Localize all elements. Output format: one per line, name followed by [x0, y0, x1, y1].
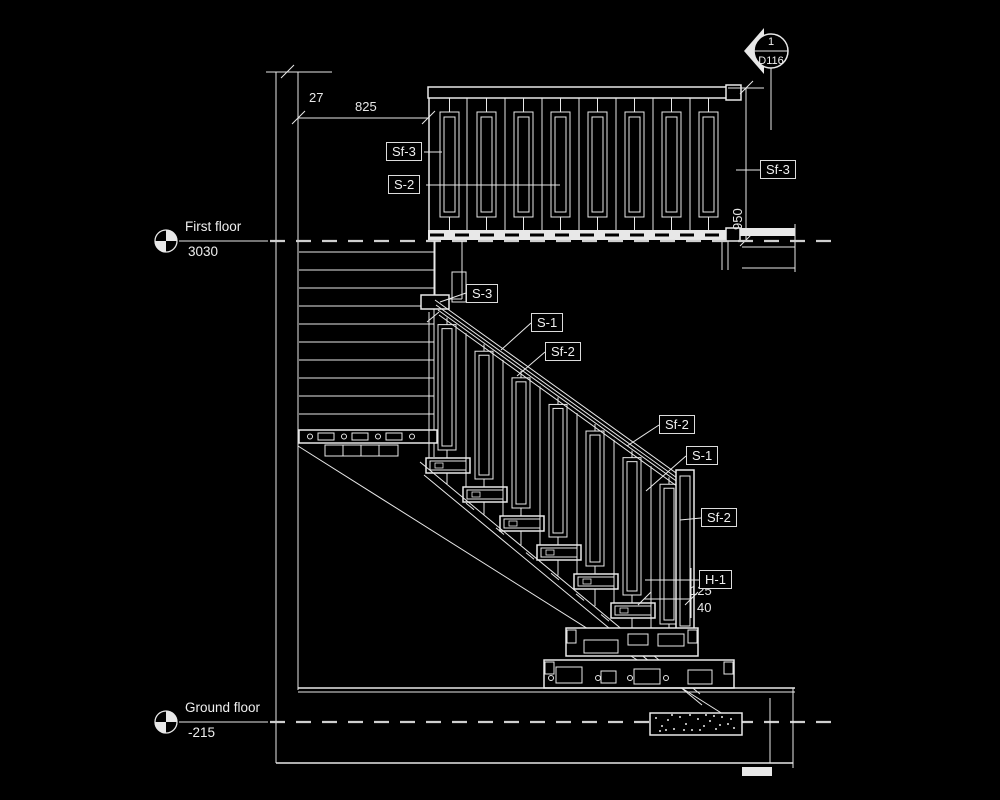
svg-text:40: 40 — [697, 600, 711, 615]
ground-floor-name: Ground floor — [185, 700, 260, 715]
floor-slab-edge — [740, 224, 795, 272]
label-sf2-right-lower: Sf-2 — [701, 508, 737, 527]
section-callout-number: 1 — [763, 36, 779, 48]
svg-text:27: 27 — [309, 90, 323, 105]
drawing-linework: 27 825 — [0, 0, 1000, 800]
stair-section-drawing: 27 825 — [0, 0, 1000, 800]
top-railing — [428, 85, 741, 270]
dim-950: 950 — [728, 81, 764, 246]
label-s1-flight: S-1 — [531, 313, 563, 332]
svg-text:950: 950 — [730, 208, 745, 230]
svg-text:825: 825 — [355, 99, 377, 114]
label-sf3-right: Sf-3 — [760, 160, 796, 179]
label-s1-right: S-1 — [686, 446, 718, 465]
label-s2-left: S-2 — [388, 175, 420, 194]
label-s3: S-3 — [466, 284, 498, 303]
landing-deck — [299, 241, 466, 457]
label-sf3-left: Sf-3 — [386, 142, 422, 161]
ground-floor-elevation: -215 — [188, 725, 215, 740]
first-floor-elevation: 3030 — [188, 244, 218, 259]
first-floor-name: First floor — [185, 219, 241, 234]
section-callout-sheet: D116 — [755, 55, 787, 67]
base-platforms — [544, 628, 734, 688]
label-h1: H-1 — [699, 570, 732, 589]
label-sf2-right-upper: Sf-2 — [659, 415, 695, 434]
label-sf2-flight: Sf-2 — [545, 342, 581, 361]
